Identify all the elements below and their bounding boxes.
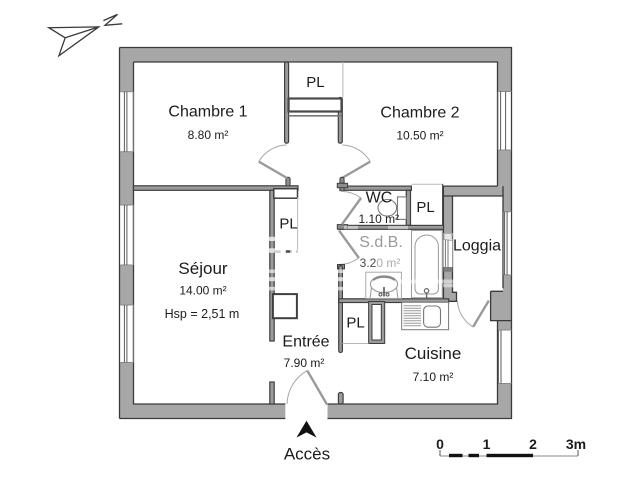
svg-text:Séjour: Séjour [178,259,227,278]
svg-text:7.10 m²: 7.10 m² [413,370,454,384]
svg-text:3m: 3m [566,436,586,452]
svg-text:Entrée: Entrée [282,334,329,351]
svg-text:8.80 m²: 8.80 m² [188,128,229,142]
svg-text:1: 1 [483,436,491,452]
svg-text:PL: PL [306,74,324,91]
svg-text:10.50 m²: 10.50 m² [396,129,443,143]
svg-text:PL: PL [416,199,434,216]
svg-text:Chambre 1: Chambre 1 [168,104,247,121]
svg-text:2: 2 [529,436,537,452]
svg-text:S.d.B.: S.d.B. [359,234,403,251]
svg-text:0: 0 [436,436,444,452]
svg-text:Loggia: Loggia [453,238,501,255]
svg-text:1.10 m²: 1.10 m² [358,212,399,226]
svg-text:Chambre 2: Chambre 2 [380,105,459,122]
svg-text:PL: PL [279,216,297,233]
svg-text:PL: PL [346,315,364,332]
svg-text:WC: WC [366,190,393,207]
svg-text:3.20 m²: 3.20 m² [360,256,401,270]
svg-text:7.90 m²: 7.90 m² [284,356,325,370]
svg-text:Hsp = 2,51 m: Hsp = 2,51 m [165,307,240,321]
svg-text:Cuisine: Cuisine [405,344,462,363]
svg-text:Accès: Accès [284,445,330,464]
svg-text:14.00 m²: 14.00 m² [179,284,226,298]
